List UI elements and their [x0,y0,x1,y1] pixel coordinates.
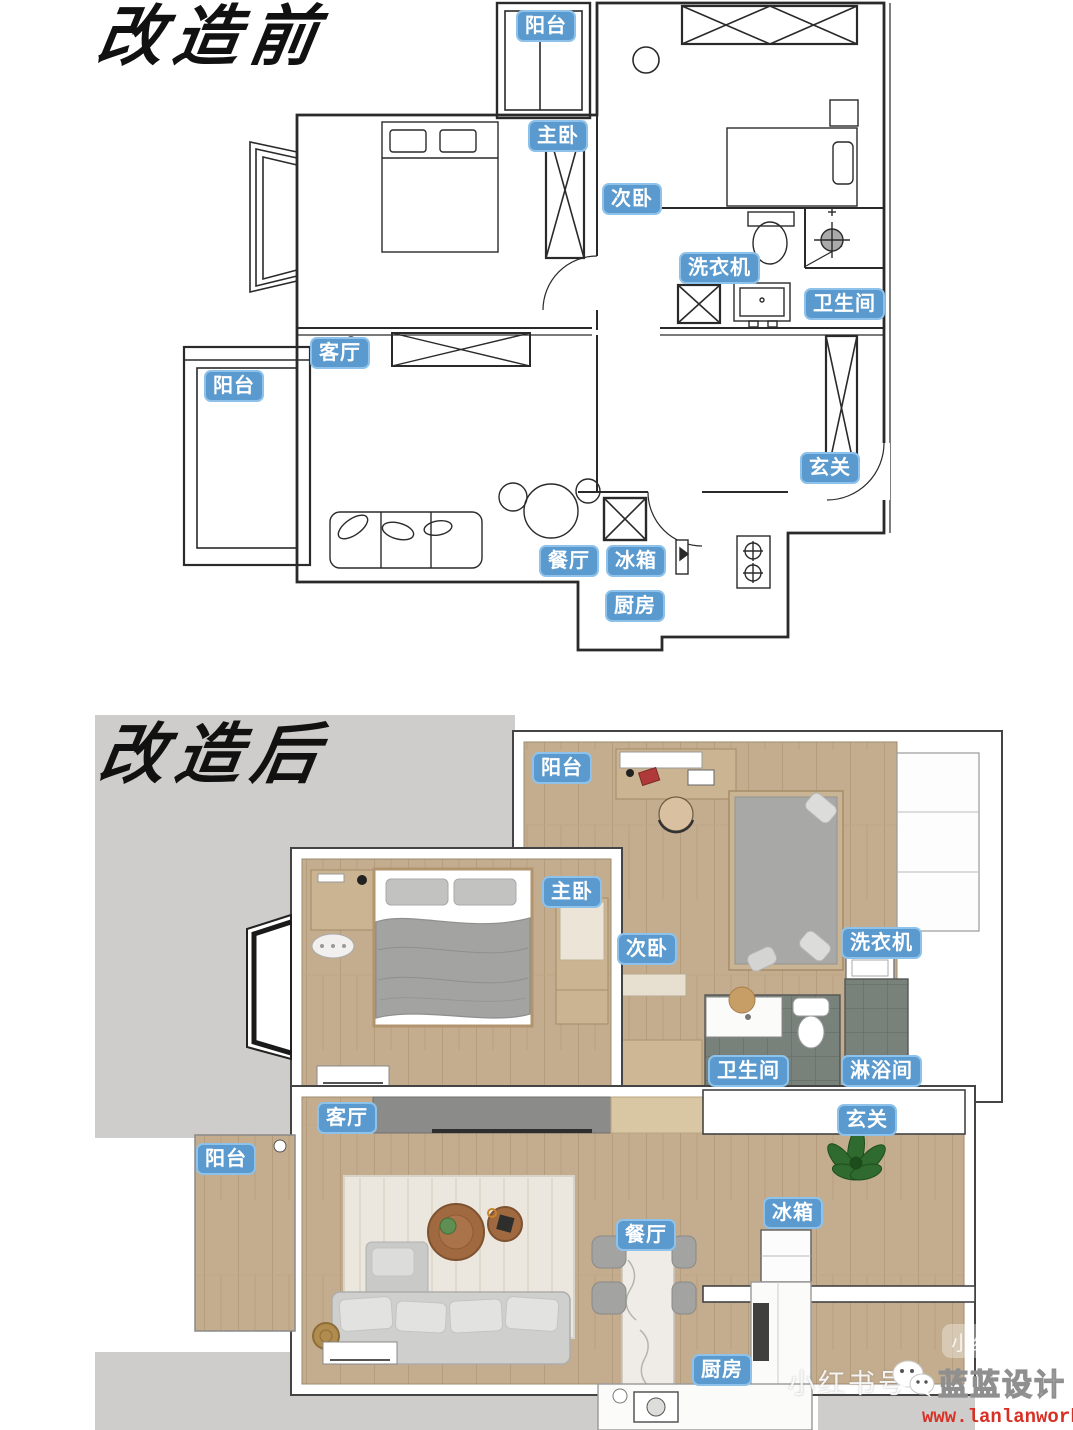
label-washer-after: 洗衣机 [841,927,922,959]
label-balcony-left-after: 阳台 [196,1143,256,1175]
label-shower-after: 淋浴间 [841,1055,922,1087]
before-bay-window [250,142,297,292]
after-master-wardrobe [556,898,608,1024]
label-balcony-top-before: 阳台 [516,10,576,42]
before-single-bed [727,100,858,206]
page: 改造前 [0,0,1073,1430]
after-washer [846,956,894,980]
after-right-cabinets [897,753,979,931]
after-workspace-desk [616,749,736,799]
after-kitchen-bottom [598,1384,812,1430]
before-sofa [330,511,482,568]
label-fridge-before: 冰箱 [606,545,666,577]
after-bay-window [247,915,291,1059]
before-stove [737,536,770,588]
before-ceiling-lamp [633,47,659,73]
label-fridge-after: 冰箱 [763,1197,823,1229]
before-shower-symbol [814,208,850,258]
after-master-ac [317,1066,389,1088]
label-living-after: 客厅 [317,1102,377,1134]
before-master-bed [382,122,498,252]
after-title: 改造后 [95,722,333,788]
before-kitchen-door-arc [648,492,702,546]
after-second-bed [729,791,843,973]
label-bathroom-before: 卫生间 [804,288,885,320]
after-second-cabinet [617,1040,702,1091]
label-balcony-top-after: 阳台 [532,752,592,784]
after-desk-chair [659,797,693,832]
label-bathroom-after: 卫生间 [708,1055,789,1087]
before-sink [734,283,790,327]
before-title: 改造前 [93,4,331,70]
after-toilet-bowl [798,1016,824,1048]
after-master-bed [374,869,532,1026]
before-master-door-arc [543,256,597,310]
before-fridge [604,498,646,540]
before-interior-walls [297,115,884,546]
after-entry-wall [703,1090,965,1134]
after-toilet-tank [793,998,829,1016]
label-master-after: 主卧 [542,876,602,908]
before-kitchen-door-leaf [676,540,688,574]
xiaohongshu-badge: 小红书 [942,1324,1026,1358]
before-wardrobe-second [682,6,857,44]
before-washing-machine [678,285,720,323]
label-dining-after: 餐厅 [616,1219,676,1251]
watermark-url: www.lanlanwork.com [922,1406,1073,1428]
label-kitchen-before: 厨房 [605,590,665,622]
before-tv-cabinet [392,333,530,366]
label-washer-before: 洗衣机 [679,252,760,284]
watermark-brand: 蓝蓝设计 [938,1360,1066,1404]
after-fridge [761,1230,811,1282]
label-second-before: 次卧 [602,183,662,215]
after-shoe-cabinet [611,1097,703,1133]
wechat-icon [890,1358,936,1400]
label-entry-before: 玄关 [800,452,860,484]
label-living-before: 客厅 [310,337,370,369]
label-kitchen-after: 厨房 [692,1354,752,1386]
before-dining-table [499,479,600,538]
label-dining-before: 餐厅 [539,545,599,577]
before-floorplan [0,0,1073,700]
after-tv-console [373,1097,611,1133]
label-master-before: 主卧 [528,120,588,152]
label-entry-after: 玄关 [837,1104,897,1136]
label-second-after: 次卧 [617,933,677,965]
after-second-bench [622,974,686,996]
label-balcony-left-before: 阳台 [204,370,264,402]
